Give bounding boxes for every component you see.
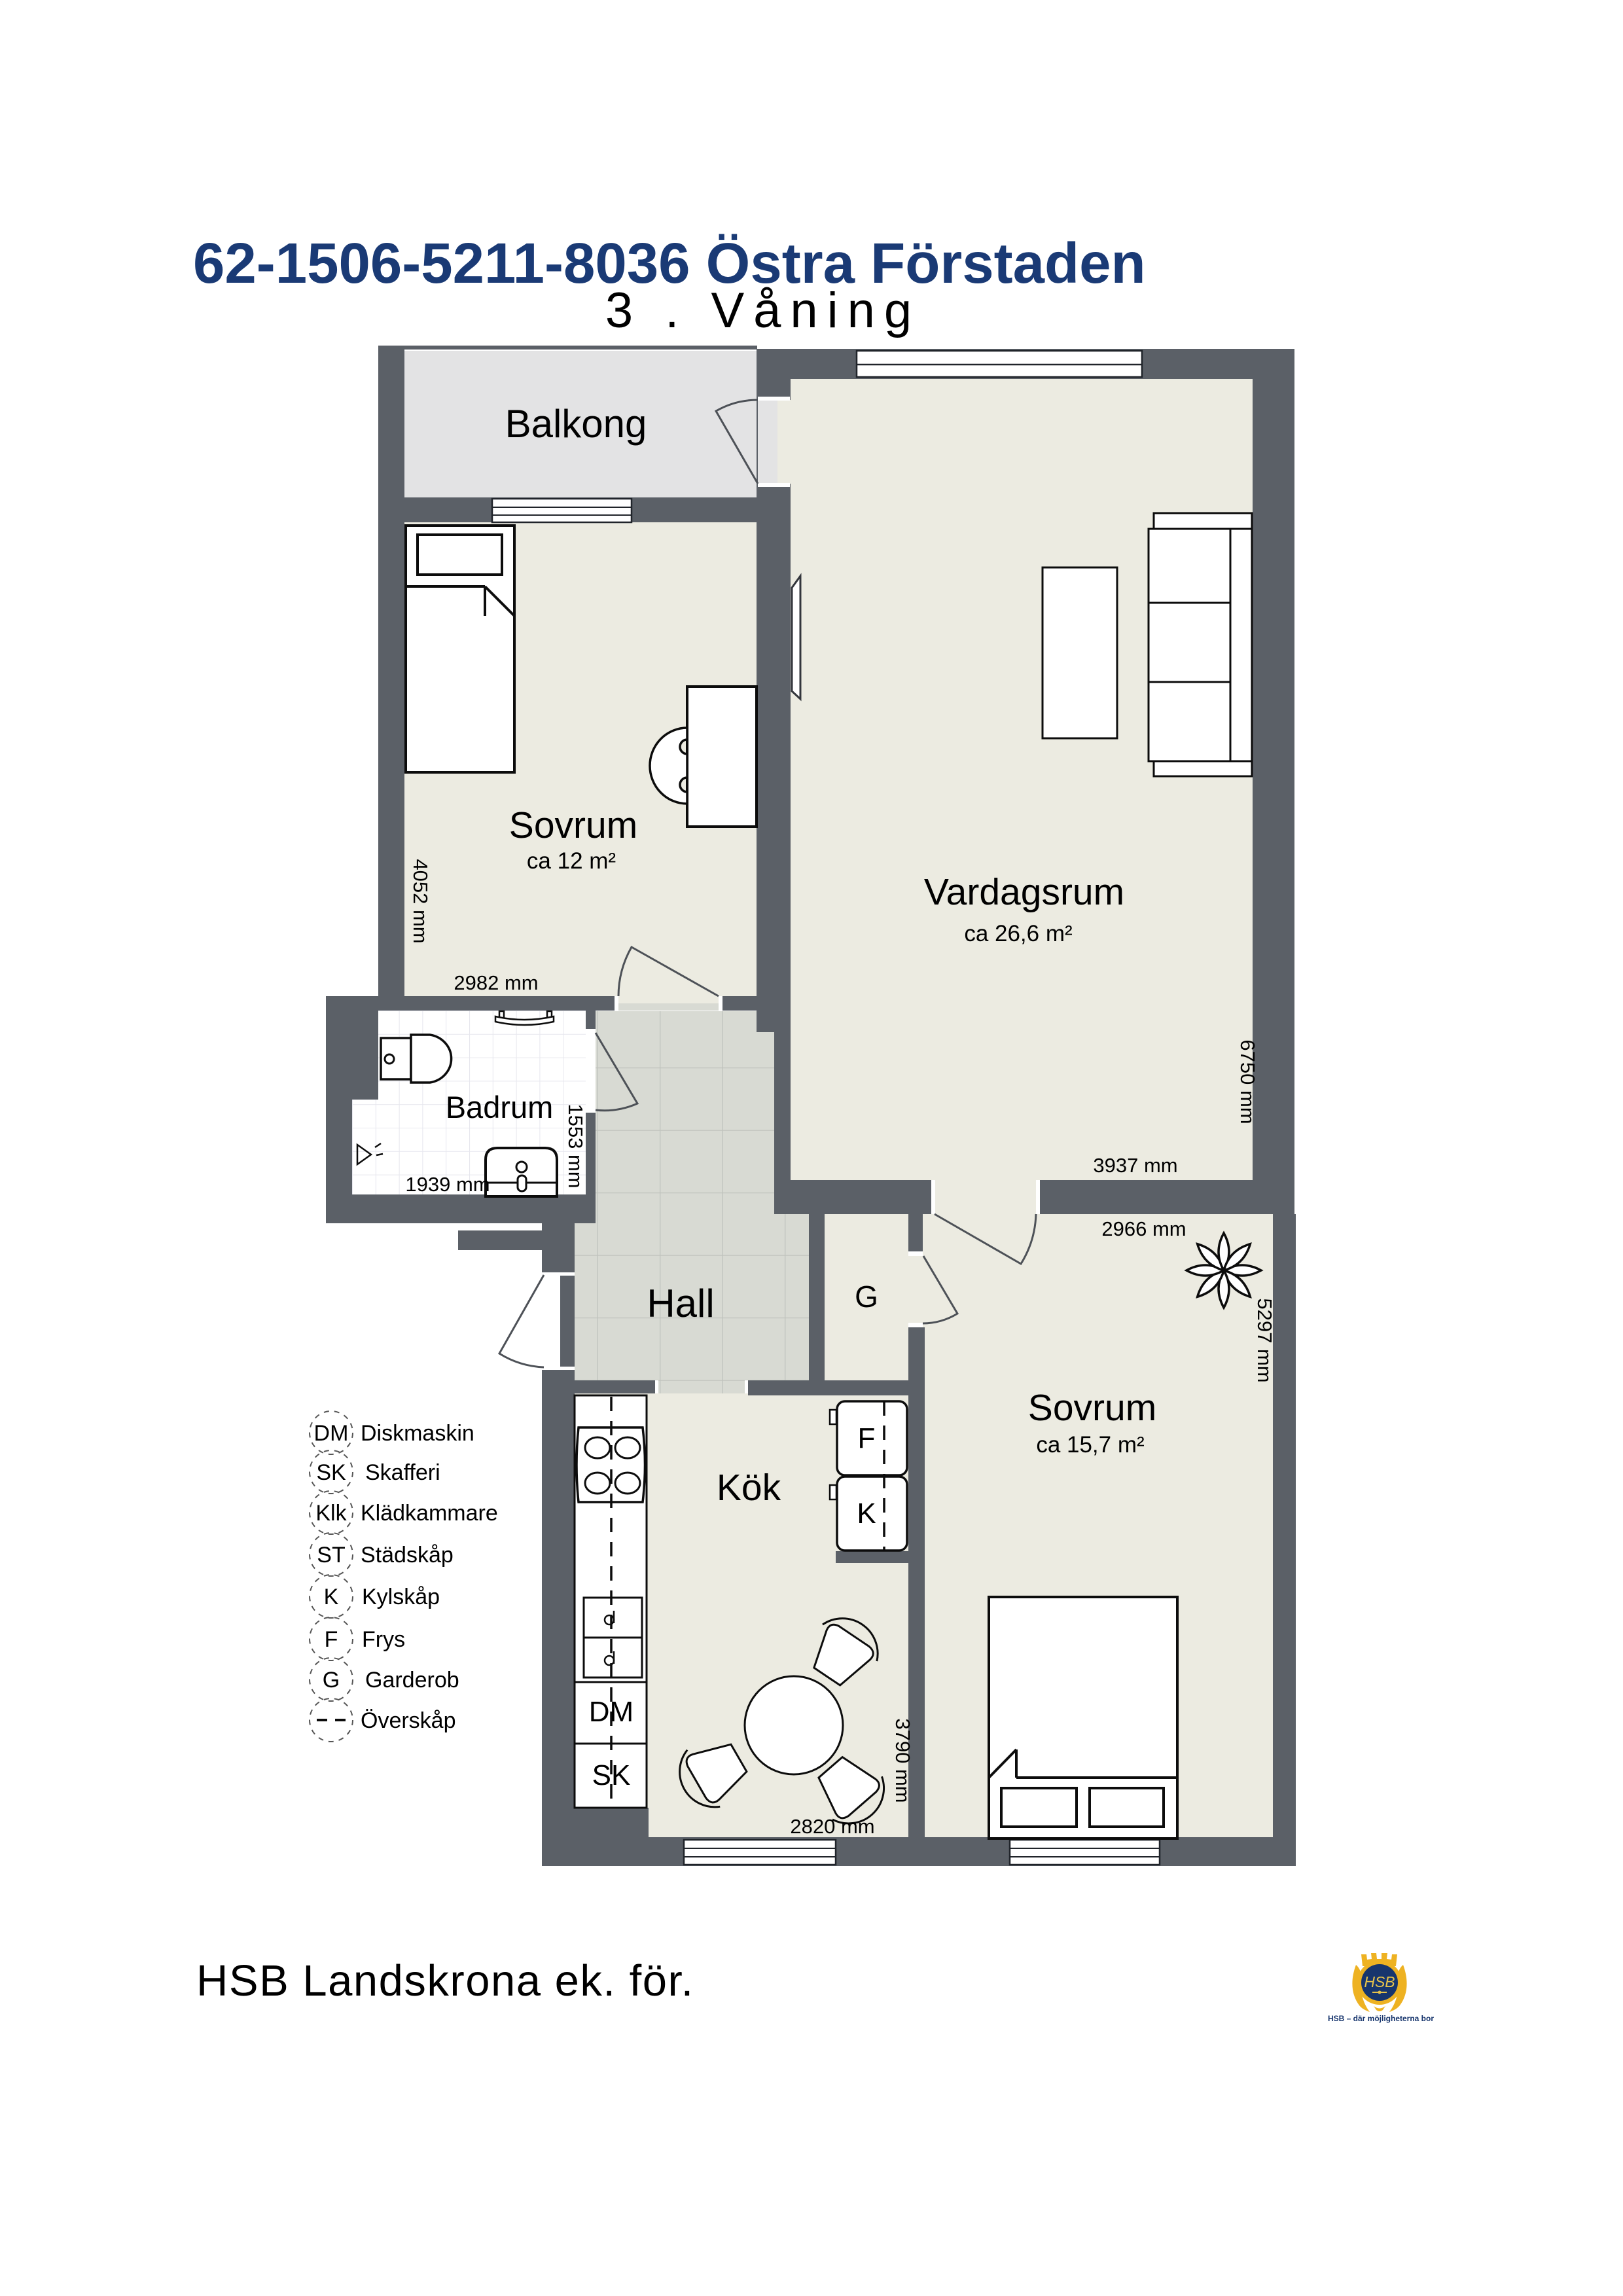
- svg-text:K: K: [324, 1585, 339, 1609]
- svg-text:ca 26,6 m²: ca 26,6 m²: [964, 921, 1072, 946]
- svg-text:Garderob: Garderob: [365, 1668, 459, 1693]
- svg-text:Balkong: Balkong: [505, 402, 647, 446]
- svg-text:3 . Våning: 3 . Våning: [605, 283, 921, 338]
- svg-text:SK: SK: [316, 1460, 346, 1485]
- svg-text:ca 12 m²: ca 12 m²: [527, 848, 616, 874]
- svg-text:G: G: [855, 1280, 878, 1314]
- svg-text:Kylskåp: Kylskåp: [362, 1585, 440, 1609]
- svg-text:2966 mm: 2966 mm: [1101, 1217, 1186, 1240]
- svg-text:Hall: Hall: [647, 1282, 714, 1325]
- svg-text:Överskåp: Överskåp: [361, 1708, 456, 1733]
- svg-text:Kök: Kök: [717, 1467, 781, 1509]
- svg-text:Badrum: Badrum: [446, 1090, 554, 1124]
- svg-text:Sovrum: Sovrum: [509, 804, 637, 846]
- svg-text:HSB: HSB: [1364, 1973, 1395, 1990]
- svg-text:SK: SK: [592, 1759, 631, 1791]
- svg-text:Städskåp: Städskåp: [361, 1543, 454, 1568]
- svg-text:4052 mm: 4052 mm: [409, 859, 432, 943]
- svg-text:Diskmaskin: Diskmaskin: [361, 1421, 474, 1446]
- svg-text:DM: DM: [314, 1421, 349, 1446]
- svg-text:5297 mm: 5297 mm: [1253, 1298, 1276, 1382]
- svg-text:Frys: Frys: [362, 1627, 405, 1652]
- svg-text:G: G: [323, 1668, 340, 1693]
- svg-text:Vardagsrum: Vardagsrum: [924, 871, 1124, 913]
- svg-text:3790 mm: 3790 mm: [891, 1718, 914, 1803]
- svg-text:HSB – där möjligheterna bor: HSB – där möjligheterna bor: [1328, 2014, 1434, 2023]
- svg-text:3937 mm: 3937 mm: [1093, 1154, 1177, 1177]
- svg-text:1939 mm: 1939 mm: [405, 1173, 490, 1196]
- svg-text:Klk: Klk: [315, 1501, 347, 1526]
- svg-text:Skafferi: Skafferi: [365, 1460, 440, 1485]
- svg-text:F: F: [325, 1627, 338, 1652]
- svg-text:ST: ST: [317, 1543, 345, 1568]
- svg-text:6750 mm: 6750 mm: [1236, 1039, 1259, 1124]
- svg-text:DM: DM: [589, 1696, 633, 1728]
- svg-text:F: F: [858, 1422, 876, 1454]
- svg-text:1553 mm: 1553 mm: [564, 1103, 587, 1188]
- svg-text:2982 mm: 2982 mm: [454, 971, 538, 994]
- svg-text:Klädkammare: Klädkammare: [361, 1501, 498, 1526]
- svg-text:K: K: [857, 1498, 876, 1530]
- svg-text:2820 mm: 2820 mm: [790, 1815, 874, 1838]
- svg-text:Sovrum: Sovrum: [1028, 1387, 1156, 1429]
- svg-text:ca 15,7 m²: ca 15,7 m²: [1036, 1432, 1144, 1458]
- svg-text:HSB Landskrona ek. för.: HSB Landskrona ek. för.: [196, 1956, 694, 2005]
